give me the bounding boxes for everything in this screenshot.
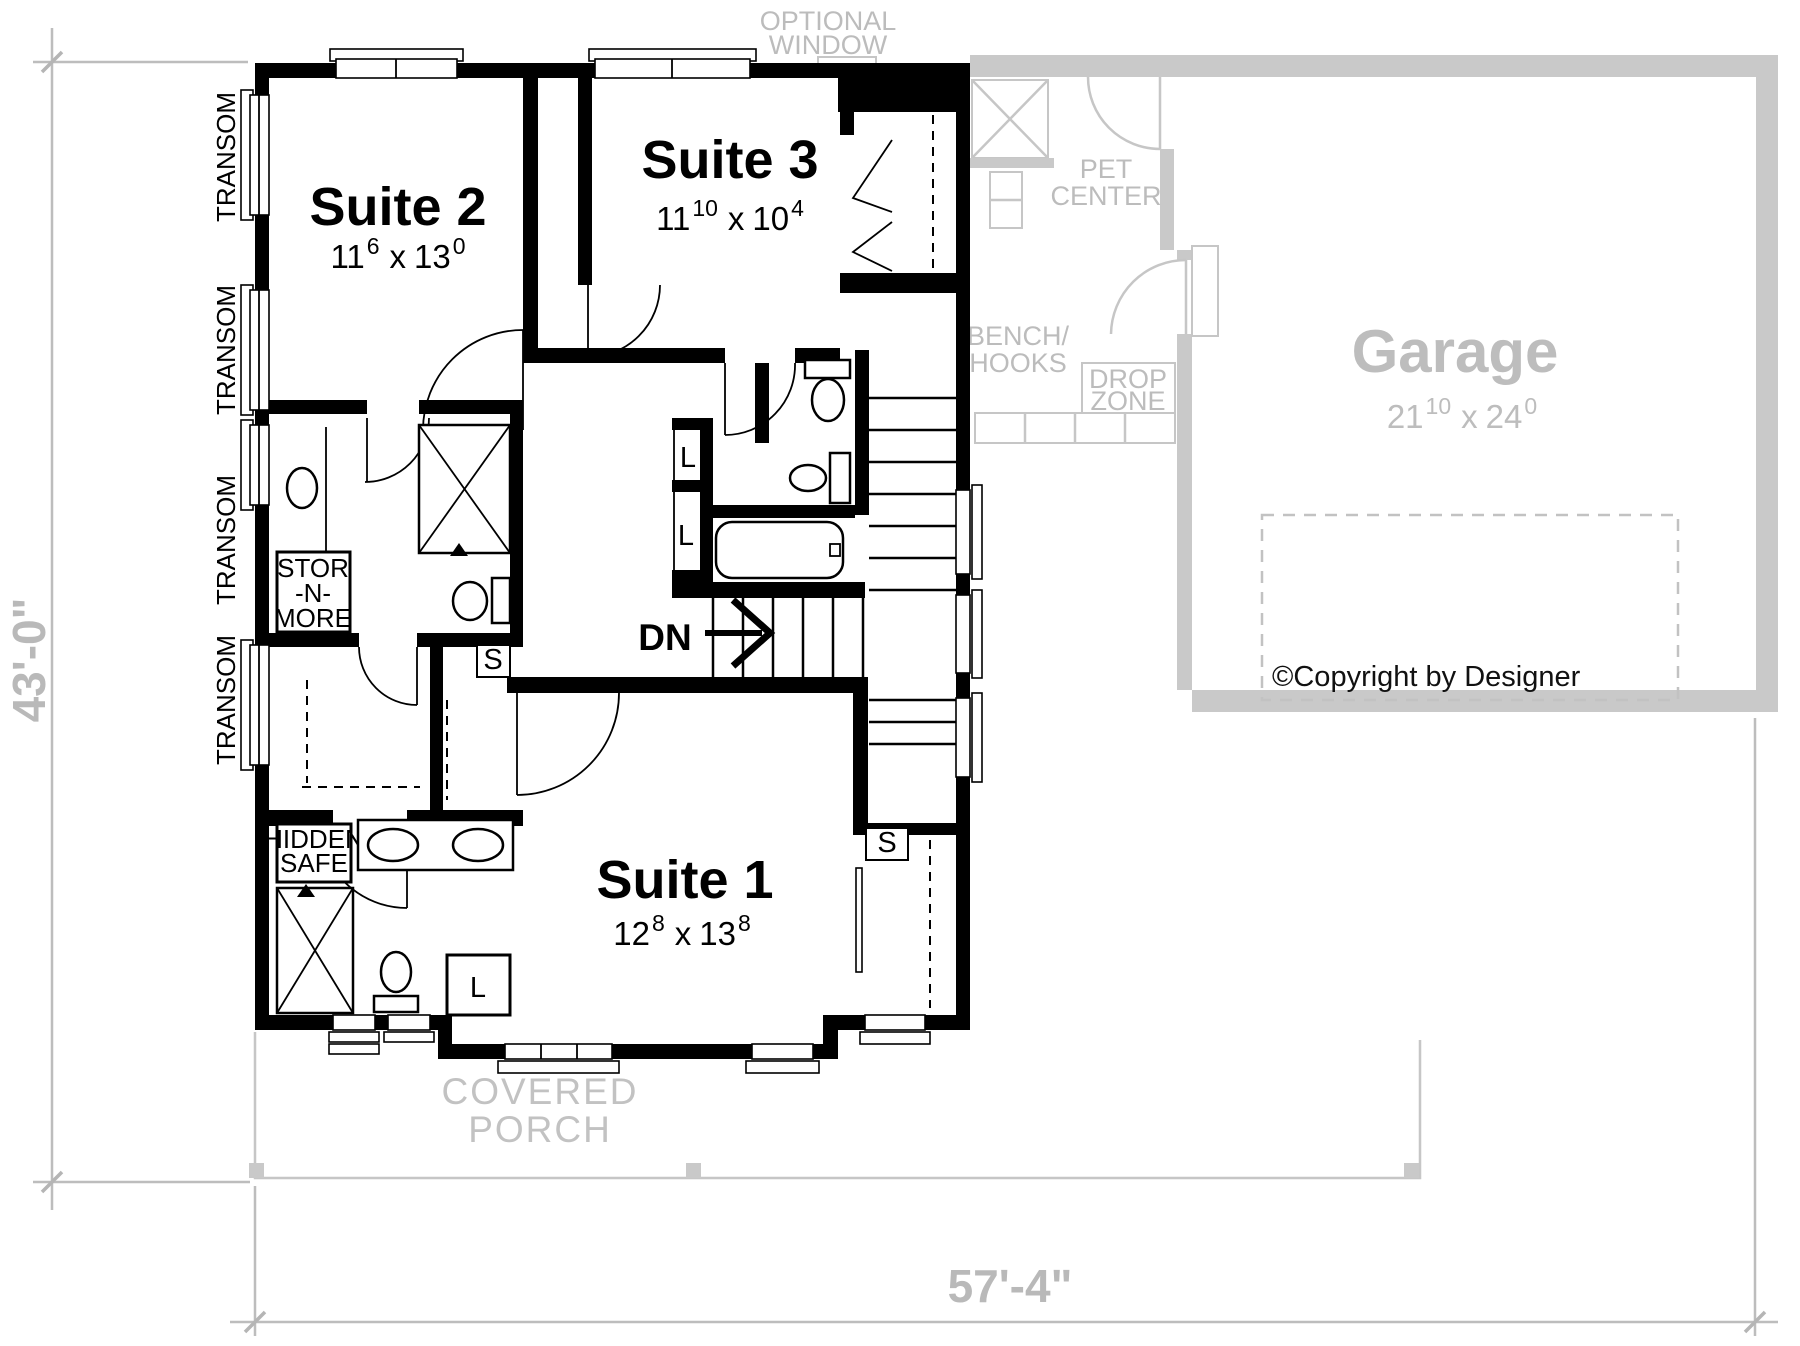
dimension-left-value: 43'-0": [3, 598, 55, 723]
suite1-dimensions: 128x138: [613, 910, 751, 952]
shelf-label-1: S: [483, 644, 502, 676]
suite1-room-label: Suite 1: [596, 850, 773, 910]
bench-hooks-label-2: HOOKS: [969, 348, 1067, 378]
shower-icon: [419, 425, 510, 556]
transom-windows-left-wall: [241, 90, 269, 770]
shared-bath-fixtures: [716, 360, 850, 578]
hall-closets: [302, 680, 447, 800]
sink-icon: [790, 465, 826, 491]
linen-closets: L L: [674, 430, 696, 570]
covered-porch-label-2: PORCH: [468, 1109, 612, 1150]
laundry-unit-icon: [966, 80, 1054, 228]
transom-labels: TRANSOM TRANSOM TRANSOM TRANSOM: [211, 92, 241, 765]
stor-label-3: MORE: [274, 603, 352, 633]
toilet-tank-icon: [492, 578, 510, 623]
sink-icon: [368, 829, 418, 861]
bench-hooks-label-1: BENCH/: [967, 321, 1070, 351]
suite2-room-label: Suite 2: [309, 177, 486, 237]
garage-room-label: Garage: [1352, 318, 1559, 385]
transom-label-3: TRANSOM: [211, 475, 241, 605]
garage-stoop: [1192, 246, 1218, 336]
suite1-bath: HIDDEN SAFE L: [264, 820, 513, 1015]
right-wall-windows: [956, 485, 982, 782]
stairs-down-arrow-icon: [705, 600, 770, 666]
drop-zone-label-2: ZONE: [1090, 386, 1165, 416]
shelf-label-2: S: [877, 827, 896, 859]
door-swing-garage-entry: [1111, 260, 1186, 334]
bathtub-icon: [716, 522, 843, 578]
toilet-icon: [453, 582, 487, 620]
pet-center-label-1: PET: [1080, 154, 1133, 184]
toilet-tank-icon: [374, 996, 418, 1012]
door-swing-suite2: [423, 330, 523, 430]
door-swing-pet-center: [1088, 77, 1160, 149]
door-swing-hall-closet: [359, 647, 417, 705]
stairs-down-label: DN: [638, 617, 691, 658]
transom-label-2: TRANSOM: [211, 285, 241, 415]
covered-porch-label-1: COVERED: [442, 1071, 639, 1112]
garage-dimensions: 2110x240: [1387, 393, 1537, 435]
suite3-dimensions: 1110x104: [656, 195, 804, 237]
linen-label-1: L: [680, 442, 696, 474]
copyright-notice: ©Copyright by Designer: [1272, 661, 1581, 693]
suite3-room-label: Suite 3: [641, 130, 818, 190]
door-swing-suite3: [588, 285, 660, 357]
second-floor-plan: DN L L: [211, 49, 982, 1073]
linen-label-3: L: [470, 972, 486, 1004]
transom-label-4: TRANSOM: [211, 635, 241, 765]
suite1-closet: S: [856, 827, 930, 1008]
toilet-icon: [287, 468, 317, 508]
floor-plan-drawing: 43'-0" 57'-4" OPTIONAL WINDOW PET CENTER…: [0, 0, 1800, 1346]
sink-icon: [453, 829, 503, 861]
toilet-icon: [812, 379, 844, 421]
door-swing-suite1: [517, 693, 619, 795]
toilet-icon: [381, 952, 411, 992]
shower-icon: [277, 884, 353, 1013]
pet-center-label-2: CENTER: [1050, 181, 1161, 211]
suite2-dimensions: 116x130: [330, 233, 465, 275]
bifold-door-icon: [853, 140, 892, 271]
toilet-tank-icon: [805, 360, 850, 378]
optional-window-label-2: WINDOW: [769, 30, 888, 60]
dimension-bottom-value: 57'-4": [948, 1260, 1073, 1312]
sink-counter: [830, 453, 850, 503]
transom-label-1: TRANSOM: [211, 92, 241, 222]
floor-plan-page: 43'-0" 57'-4" OPTIONAL WINDOW PET CENTER…: [0, 0, 1800, 1346]
linen-label-2: L: [678, 520, 694, 552]
hidden-safe-label-2: SAFE: [280, 848, 348, 878]
